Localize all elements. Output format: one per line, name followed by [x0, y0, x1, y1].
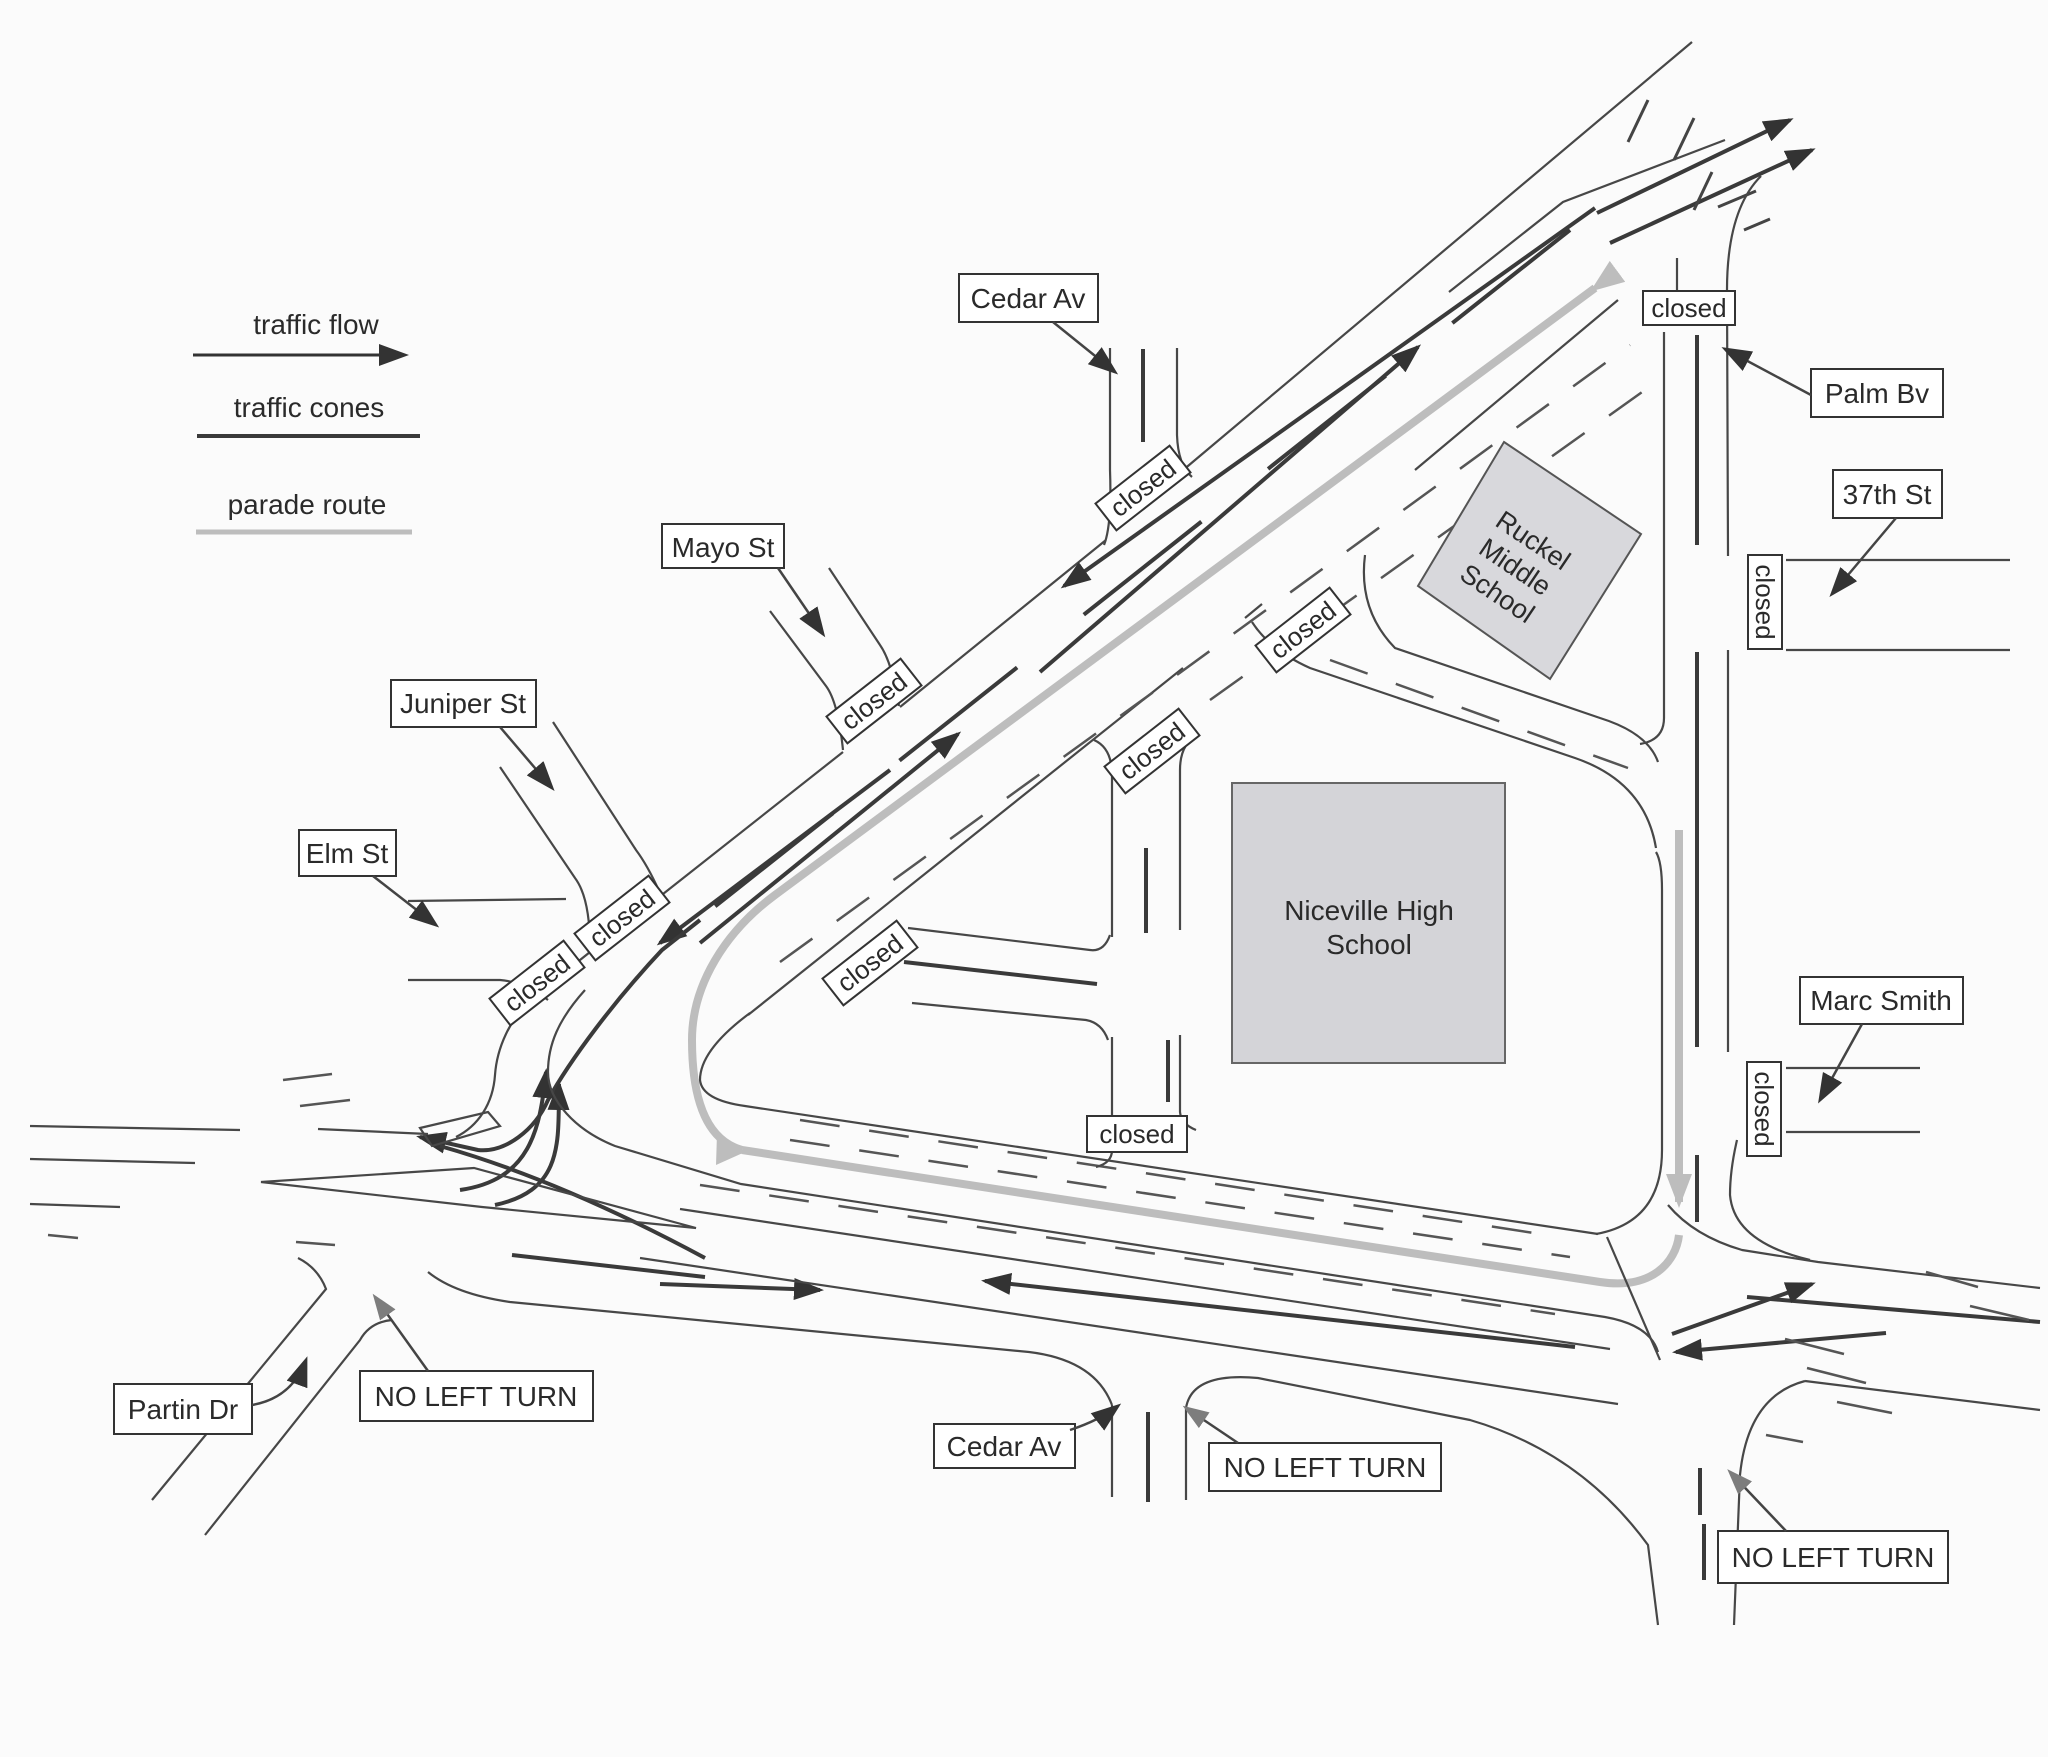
svg-text:Niceville High: Niceville High — [1284, 895, 1454, 926]
svg-text:Juniper St: Juniper St — [400, 688, 526, 719]
svg-text:Cedar Av: Cedar Av — [971, 283, 1086, 314]
svg-text:parade route: parade route — [228, 489, 387, 520]
svg-text:traffic cones: traffic cones — [234, 392, 384, 423]
svg-text:closed: closed — [1749, 1071, 1779, 1146]
svg-text:Marc Smith: Marc Smith — [1810, 985, 1952, 1016]
svg-text:closed: closed — [1651, 293, 1726, 323]
svg-text:Elm St: Elm St — [306, 838, 389, 869]
svg-text:37th St: 37th St — [1843, 479, 1932, 510]
svg-text:closed: closed — [1099, 1119, 1174, 1149]
svg-text:Mayo St: Mayo St — [672, 532, 775, 563]
svg-text:NO LEFT TURN: NO LEFT TURN — [375, 1381, 578, 1412]
svg-text:closed: closed — [1750, 564, 1780, 639]
svg-text:Palm Bv: Palm Bv — [1825, 378, 1929, 409]
svg-text:School: School — [1326, 929, 1412, 960]
svg-text:Partin Dr: Partin Dr — [128, 1394, 238, 1425]
svg-text:NO LEFT TURN: NO LEFT TURN — [1224, 1452, 1427, 1483]
svg-text:traffic flow: traffic flow — [253, 309, 379, 340]
svg-text:Cedar Av: Cedar Av — [947, 1431, 1062, 1462]
svg-text:NO LEFT TURN: NO LEFT TURN — [1732, 1542, 1935, 1573]
